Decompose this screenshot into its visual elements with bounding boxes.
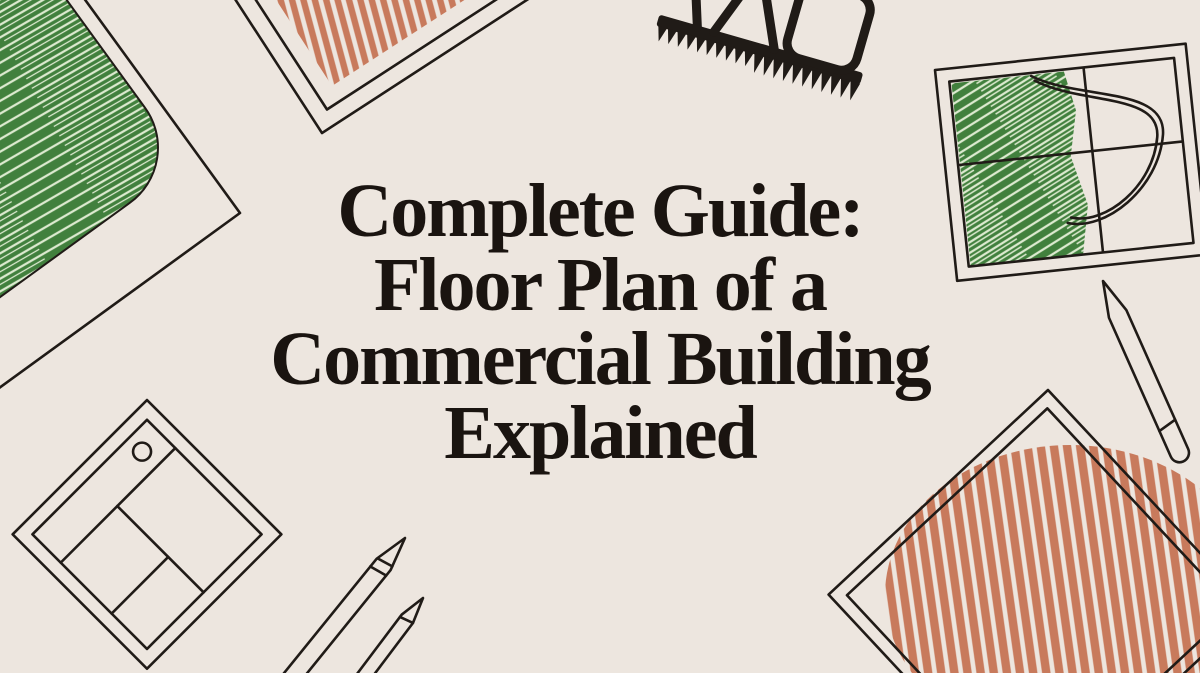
rake-brush-icon (651, 0, 883, 102)
hero-banner: Complete Guide: Floor Plan of a Commerci… (0, 0, 1200, 673)
title-line-3: Commercial Building (0, 322, 1200, 396)
title-line-4: Explained (0, 396, 1200, 470)
orange-hatch-sheet-icon (142, 0, 733, 133)
title-line-2: Floor Plan of a (0, 248, 1200, 322)
page-title: Complete Guide: Floor Plan of a Commerci… (0, 174, 1200, 470)
title-line-1: Complete Guide: (0, 174, 1200, 248)
